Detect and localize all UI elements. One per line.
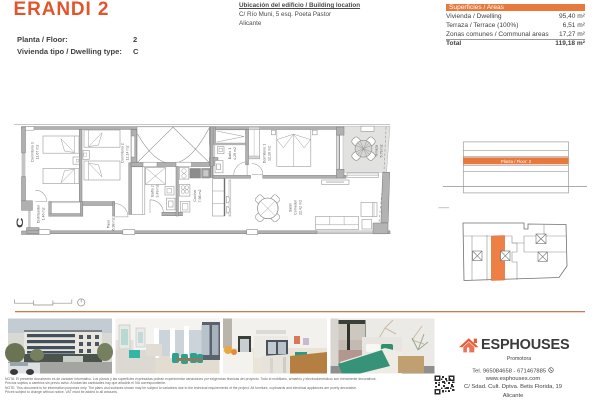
svg-text:7,98 m2: 7,98 m2	[198, 190, 202, 203]
svg-text:4,29 m2: 4,29 m2	[233, 147, 237, 160]
svg-text:C: C	[15, 217, 26, 228]
svg-text:Dormitorio 2: Dormitorio 2	[121, 143, 125, 163]
svg-text:11,67 m2: 11,67 m2	[36, 145, 40, 160]
svg-text:Comedor: Comedor	[294, 199, 298, 215]
svg-text:1,46 m2: 1,46 m2	[42, 208, 46, 221]
svg-text:6,98 m2: 6,98 m2	[112, 218, 116, 231]
svg-text:Baño 2: Baño 2	[151, 185, 155, 196]
svg-text:Dormitorio 3: Dormitorio 3	[31, 142, 35, 162]
svg-text:22,42 m2: 22,42 m2	[299, 200, 303, 215]
svg-text:Baño 1: Baño 1	[228, 148, 232, 159]
svg-text:Cocina: Cocina	[193, 190, 197, 201]
svg-text:5,79 m2: 5,79 m2	[380, 145, 384, 158]
svg-text:Distribuidor: Distribuidor	[37, 204, 41, 223]
svg-text:Planta / Floor: 2: Planta / Floor: 2	[501, 159, 532, 164]
svg-text:Paso: Paso	[107, 220, 111, 228]
svg-text:12,14 m2: 12,14 m2	[126, 146, 130, 161]
svg-text:Terraza: Terraza	[375, 145, 379, 157]
svg-text:3,49 m2: 3,49 m2	[156, 185, 160, 198]
svg-text:Salón: Salón	[289, 203, 293, 212]
svg-text:Dormitorio 1: Dormitorio 1	[263, 144, 267, 164]
svg-text:12,10 m2: 12,10 m2	[268, 146, 272, 161]
